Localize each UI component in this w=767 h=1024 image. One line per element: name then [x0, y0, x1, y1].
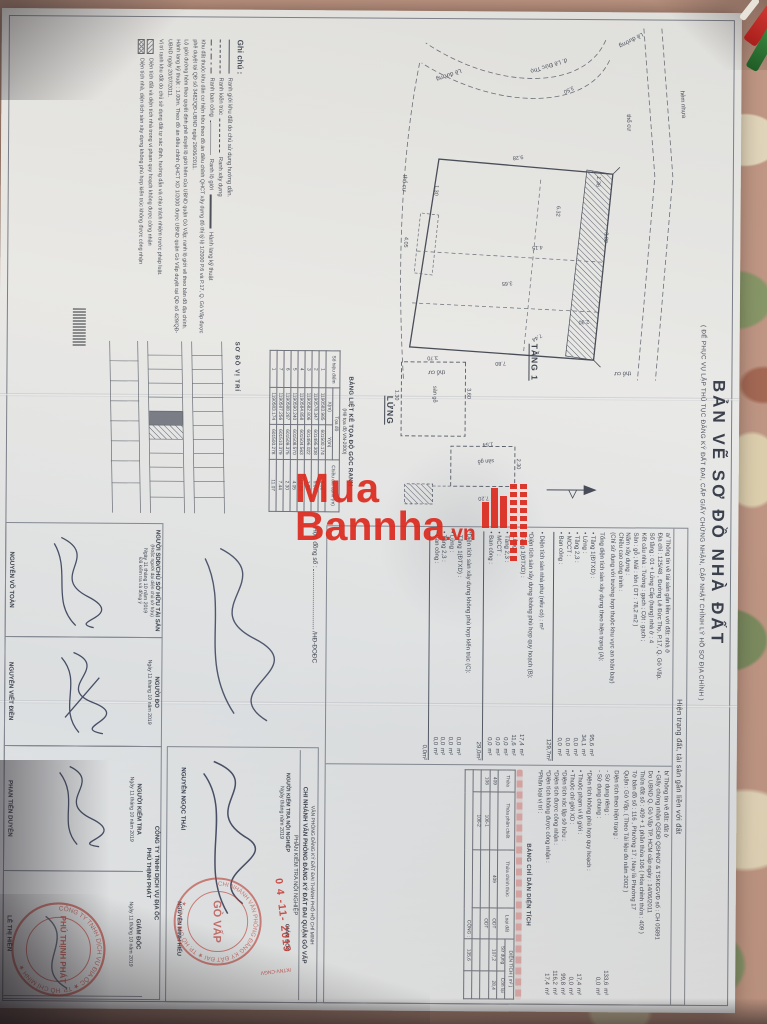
signature-scribble: [51, 647, 114, 737]
coord-x: 1190582.806: [305, 388, 312, 425]
area-item: • MCCT :0,0m²: [562, 532, 572, 761]
checker-name: NGUYỄN NGỌC THÁI: [179, 767, 186, 830]
edge-length: 2.30: [283, 459, 290, 512]
point-id: 6: [284, 350, 291, 387]
point-id: 1: [319, 351, 326, 388]
building-info-lines: a/ Thông tin về tài sản gắn liền với đất…: [606, 532, 671, 761]
legend-hatch-row: Diện tích nhà, diện tích sàn xây dựng kh…: [136, 39, 145, 333]
coord-y: 601504.563: [297, 425, 304, 459]
area-block-title: Tổng diện tích sàn xây dựng theo hiện tr…: [595, 532, 605, 761]
checker-title: NGƯỜI KIỂM TRA NỘI NGHIỆP: [284, 750, 291, 875]
area-item: • MCCT :0,0m²: [492, 531, 502, 760]
area-item: • Tầng 2,3 :0,0m²: [570, 532, 580, 761]
info-line: Địa chỉ : 125/48 , Đường Lê Đức Thọ, P.1…: [653, 533, 663, 762]
location-map-drawing: [104, 341, 233, 514]
thick-line-symbol: [209, 194, 211, 228]
round-stamp-company: CÔNG TY TNHH DỊCH VỤ ĐỊA ỐC ★ TP. HỒ CHÍ…: [9, 900, 108, 999]
hatch-label: Diện tích nhà, diện tích sàn xây dựng kh…: [137, 58, 144, 264]
coord-y: 601508.570: [290, 425, 297, 459]
dimension-label: 4.15: [532, 244, 543, 251]
info-line: Tờ bản đồ số : 116 , Phường 17 ; Nay là …: [628, 770, 638, 1000]
legend-hatch-row: Diện tích đất và diện tích nhà trong vi …: [145, 39, 154, 333]
crosshatch-swatch-icon: [138, 39, 145, 54]
coord-x: 1190588.287: [284, 388, 291, 425]
building-icon: [482, 484, 527, 562]
coord-x: 1190584.858: [298, 388, 305, 425]
photo-of-land-survey-document: { "title":{ "main":"BẢN VẼ SƠ ĐỒ NHÀ ĐẤT…: [0, 0, 767, 1024]
legend-label: Ranh ban công: [208, 77, 214, 116]
point-id: 3: [305, 351, 312, 388]
contract-suffix: /HĐ-ĐOĐC: [310, 631, 317, 663]
solid-line-symbol: [229, 40, 230, 74]
area-block-title: Diện tích theo hiện trạng :: [609, 770, 619, 1000]
dashed-line-symbol: [220, 40, 221, 74]
property-status-box: Hiện trạng đất, tài sản gắn liền với đất…: [323, 525, 688, 1006]
legend-label: Ranh xây dựng: [217, 157, 223, 197]
area-item: *Diện tích được công nhận :116,2m²: [549, 770, 559, 1000]
dimension-label: 1.30: [432, 185, 439, 196]
table-row: 106-2: [472, 770, 482, 999]
table-row: 6 1190588.287 601509.375 2.30: [283, 350, 291, 511]
legend-row: Ranh ban công Ranh lộ giới Hành lang kỹ …: [207, 39, 215, 333]
edge-length: 11.07: [269, 459, 276, 512]
area-block-title: *Diện tích sàn xây dựng không phù hợp qu…: [524, 532, 534, 761]
table-row: 409 409ODT 107,228,4: [488, 770, 498, 999]
office-name: VĂN PHÒNG ĐĂNG KÝ ĐẤT ĐAI THÀNH PHỐ HỒ C…: [308, 750, 316, 1000]
legend-note: Hành lang kỹ thuật : 1.00m. Theo đồ án đ…: [163, 39, 181, 333]
svg-text:GÒ VẤP: GÒ VẤP: [210, 900, 223, 943]
signature-scribble: [46, 532, 107, 632]
area-item: • Thuộc chỉ giới XD :0,0m²: [565, 770, 575, 1000]
watermark-text: Bannha.vn: [295, 508, 476, 546]
dotted-line-symbol: [210, 121, 211, 155]
info-line: Do UBND Q. Gò Vấp TP. HCM cấp ngày : 14/…: [643, 771, 653, 1001]
coord-y: 601495.308: [311, 425, 318, 459]
legend-note: Khu đất thuộc khu dân cư hiện hữu theo đ…: [188, 39, 206, 333]
table-row: 1 1190583.174 601500.278 11.07: [269, 350, 277, 511]
dash-dot-line-symbol: [211, 39, 212, 73]
area-item: • Tầng 2,3 :0,0m²: [437, 531, 447, 760]
area-item: • Tầng 1(ĐTXD) :0,0m²: [453, 531, 463, 760]
room-label: sàn gỗ: [431, 386, 437, 403]
area-block-title: *Diện tích không phù hợp quy hoạch :: [582, 770, 592, 1000]
legend-row: Ranh giới khu đất do chủ sử dụng hướng d…: [225, 40, 233, 334]
company-name: CÔNG TY TNHH DỊCH VỤ ĐỊA ỐC PHÚ THỊNH PH…: [142, 747, 161, 998]
coord-y: 601500.174: [318, 425, 325, 459]
coord-x: 1190583.174: [270, 388, 277, 425]
col-header: X(m): [326, 388, 333, 425]
hatch-label: Diện tích đất và diện tích nhà trong vi …: [146, 58, 153, 246]
area-item: *Diện tích không được công nhận :17,4m²: [541, 770, 551, 1000]
hatch-swatch-icon: [147, 39, 154, 54]
company-checker-cell: NGƯỜI KIỂM TRA Ngày 11 tháng 10 năm 2019…: [4, 746, 144, 873]
dimension-label: 1.36: [594, 176, 601, 187]
info-line: Quận : Gò Vấp. ( Theo Tài liệu đo năm 20…: [620, 770, 630, 1000]
building-info-column: a/ Thông tin về tài sản gắn liền với đất…: [326, 526, 674, 766]
area-total: 129,7m²: [543, 532, 555, 761]
area-item: • Lửng :34,1m²: [578, 532, 588, 761]
coord-y: 601510.379: [276, 425, 283, 459]
point-id: 4: [298, 351, 305, 388]
signature-scribble: [189, 538, 290, 729]
room-label: sàn gỗ: [477, 457, 494, 464]
floor1-site-plan: hẻm nhựa đ. Lê Đức Thọ Lề đường Lề đường…: [371, 25, 691, 383]
legend-label: Ranh lộ giới: [208, 159, 214, 190]
info-line: Kết cấu nhà : Tường : gạch ; Cột : gạch …: [637, 532, 647, 761]
location-map: SƠ ĐỒ VỊ TRÍ: [92, 341, 239, 514]
area-item: • Tầng 1(ĐTXD) :17,4m²: [515, 532, 525, 761]
coord-x: 1190587.256: [277, 388, 284, 425]
table-row: 7 1190587.256 601510.379 7.44: [276, 350, 284, 511]
table-sum-row: CỘNG : 135,6: [463, 770, 473, 999]
area-index-table: BẢNG CHỈ DẪN DIỆN TÍCH Thửa Thửa phân ch…: [463, 769, 532, 999]
col-header: Số hiệu điểm: [326, 351, 340, 388]
floor1-plan-label: TẦNG 1: [528, 344, 539, 381]
land-type-label: thổ cư: [400, 175, 407, 192]
dimension-label: 3.80: [602, 232, 609, 243]
edge-length: 7.44: [276, 459, 283, 512]
info-line: b/ Thông tin về đất: đất ở: [659, 771, 669, 1001]
owner-signature-cell: NGƯỜI SDĐ/CHỦ SỞ HỮU TÀI SẢN (Hoặc người…: [5, 522, 164, 638]
coord-x: 1190590.240: [291, 388, 298, 425]
dimension-label: 2.30: [515, 459, 521, 470]
area-total: 29,0m²: [473, 531, 485, 760]
coord-y: 601500.278: [269, 425, 276, 459]
land-type-label: thổ cư: [614, 369, 631, 376]
point-id: 1: [270, 350, 277, 387]
info-line: • Giấy chứng nhận QSDĐ QSHNƠ & TSKĐGVĐ s…: [651, 771, 661, 1001]
area-item: • Ban công :0,0m²: [429, 531, 439, 760]
area-item: • Tầng 1(ĐTXD) :95,6m²: [586, 532, 596, 761]
checker-date: Ngày tháng năm 2019: [278, 750, 285, 875]
area-total: 0,0m²: [418, 531, 430, 760]
land-type-label: thổ cư: [625, 114, 632, 131]
land-info-lines: b/ Thông tin về đất: đất ở• Giấy chứng n…: [620, 770, 669, 1000]
area-item: • Lửng :0,0m²: [445, 531, 455, 760]
legend-notes: Khu đất thuộc khu dân cư hiện hữu theo đ…: [154, 39, 206, 333]
dimension-label: 4.05: [402, 237, 409, 248]
legend-label: Ranh giới khu đất do chủ sử dụng hướng d…: [226, 78, 233, 198]
area-item: • Ban công :0,0m²: [484, 531, 494, 760]
round-stamp-govap: CHI NHÁNH VĂN PHÒNG ĐĂNG KÝ ĐẤT ĐAI ★ TP…: [171, 875, 264, 968]
area-item: • Ban công :0,0m²: [554, 532, 564, 761]
location-map-label: SƠ ĐỒ VỊ TRÍ: [232, 342, 239, 514]
area-item: *Phân loại vị trí :: [534, 770, 544, 1000]
coord-y: 601509.375: [283, 425, 290, 459]
col-header: Y(m): [325, 425, 332, 459]
legend: Ghi chú : Ranh giới khu đất do chủ sử dụ…: [21, 38, 245, 334]
dimension-label: 2.30: [578, 318, 589, 325]
area-item: • Tầng 2,3 :0,0m²: [500, 531, 510, 760]
area-table-title: BẢNG CHỈ DẪN DIỆN TÍCH: [523, 770, 533, 1000]
site-plan-drawing: [389, 25, 691, 383]
info-line: Thửa đất số : 409 + 1 phần thửa 106 ( Hò…: [635, 770, 645, 1000]
area-item: • Lửng :11,6m²: [508, 532, 518, 761]
dimension-label: 3.70: [427, 354, 438, 360]
table-row: 106106-1 ODT: [480, 770, 490, 999]
long-dash-line-symbol: [219, 119, 220, 153]
dimension-label: 1.54: [482, 441, 493, 447]
info-line: (Chỉ sử dụng với trường hợp thuộc khu vự…: [606, 532, 616, 761]
coord-y: 601496.022: [304, 425, 311, 459]
legend-label: Hành lang kỹ thuật: [207, 232, 213, 280]
point-id: 2: [312, 351, 319, 388]
area-item: *Diện tích xác lập sở hữu :99,8m²: [557, 770, 567, 1000]
mezzanine-plan-label: LỬNG: [384, 396, 395, 425]
coord-x: 1190583.985: [319, 388, 326, 425]
surveyor-signature-cell: NGƯỜI ĐO Ngày 11 tháng 10 năm 2019 NGUYỄ…: [4, 636, 163, 747]
info-line: Sàn : gỗ ; Mái : tôn ( DT : 78,2 m2 ): [629, 532, 639, 761]
signature-scribble: [49, 761, 108, 851]
col-header: Tọa độ: [332, 388, 339, 459]
legend-row: Ranh kiến trúc Ranh xây dựng: [216, 40, 224, 334]
north-arrow-icon: [543, 477, 599, 503]
point-id: 7: [277, 350, 284, 387]
area-block-title: *Diện tích sàn xây dựng không phù hợp ki…: [462, 531, 472, 760]
legend-label: Ranh kiến trúc: [217, 78, 223, 115]
dimension-label: 3.65: [502, 280, 513, 287]
info-line: a/ Thông tin về tài sản gắn liền với đất…: [661, 533, 671, 762]
coord-x: 1190578.347: [312, 388, 319, 425]
area-item: - Sử dụng chung :0,0m²: [592, 770, 602, 1000]
area-item: • Thuộc phạm vi lộ giới :17,4m²: [573, 770, 583, 1000]
red-stamp-scribble: [515, 770, 523, 1000]
point-id: 5: [291, 351, 298, 388]
watermark: Mua Bannha.vn: [295, 470, 527, 562]
info-line: Năm xây dựng :: [621, 532, 631, 761]
land-info-column: b/ Thông tin về đất: đất ở• Giấy chứng n…: [324, 764, 672, 1004]
dimension-label: 6.32: [554, 206, 561, 217]
svg-text:PHÚ THỊNH PHÁT: PHÚ THỊNH PHÁT: [58, 916, 67, 984]
dimension-label: 3.60: [465, 388, 471, 399]
